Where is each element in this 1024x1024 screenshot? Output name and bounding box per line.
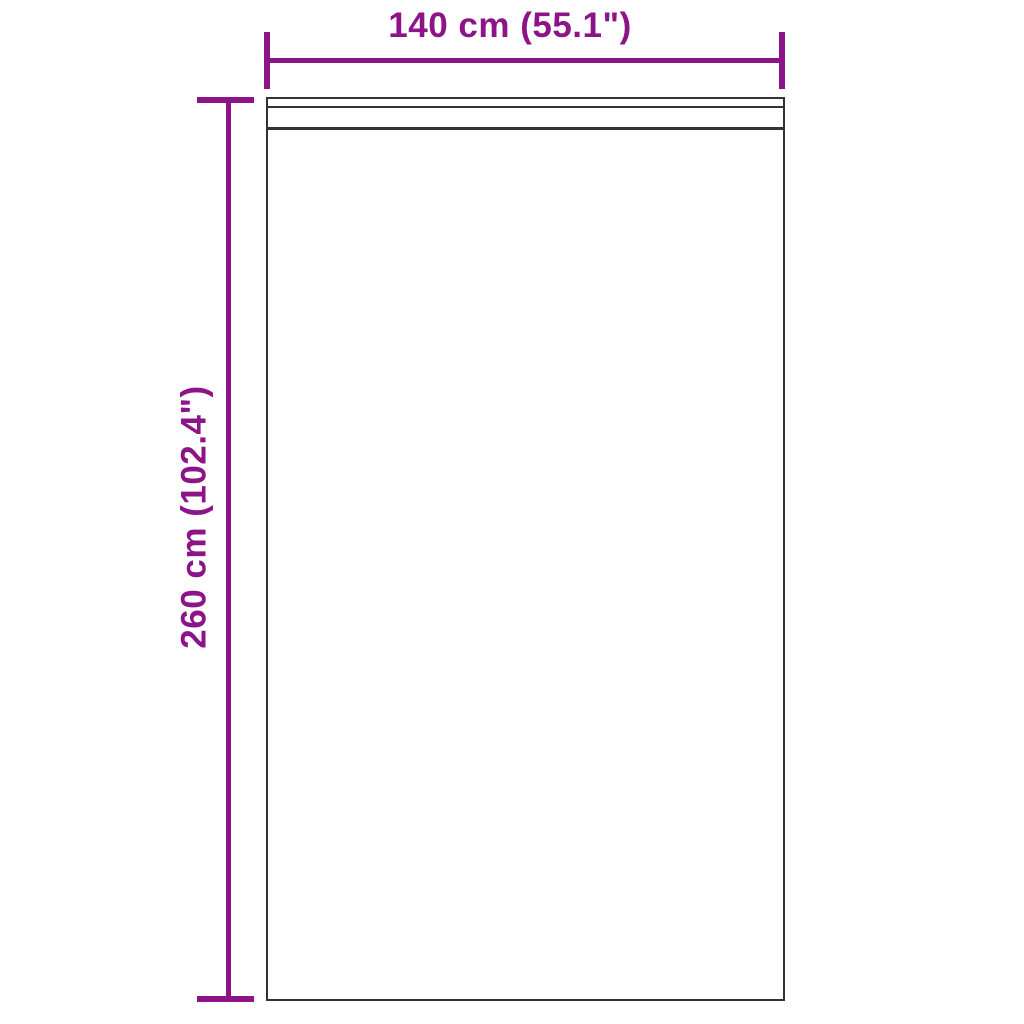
height-dimension-tick-top	[197, 97, 254, 103]
dimension-diagram: 140 cm (55.1") 260 cm (102.4")	[0, 0, 1024, 1024]
height-dimension-line	[226, 100, 231, 999]
width-dimension-tick-left	[264, 32, 270, 89]
panel-header-seam-top	[268, 106, 783, 108]
width-dimension-label: 140 cm (55.1")	[252, 8, 768, 43]
panel-header-seam-bottom	[268, 127, 783, 130]
curtain-panel-outline	[266, 97, 785, 1001]
width-dimension-line	[267, 58, 783, 63]
width-dimension-tick-right	[779, 32, 785, 89]
height-dimension-label: 260 cm (102.4")	[177, 385, 212, 648]
height-dimension-tick-bottom	[197, 996, 254, 1002]
